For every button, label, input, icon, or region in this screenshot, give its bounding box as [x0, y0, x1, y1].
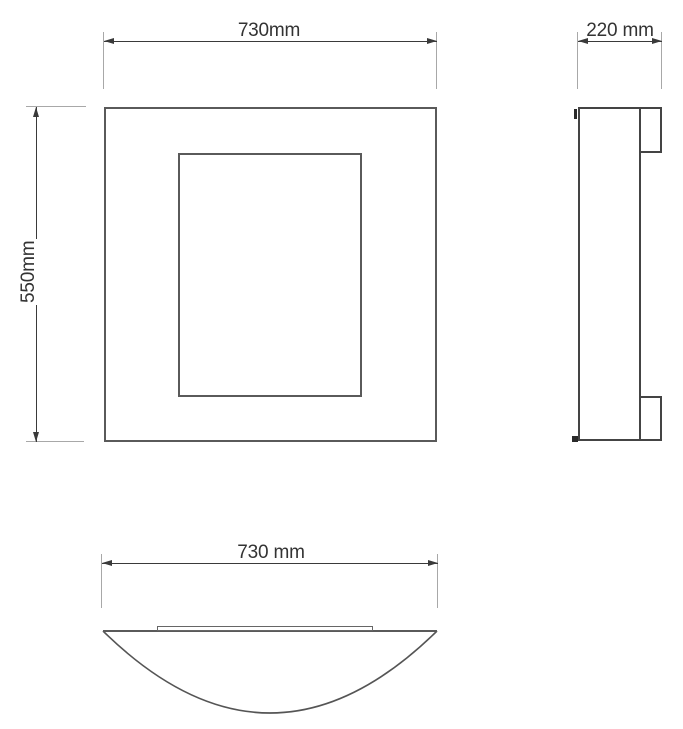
front-height-arrow-top — [33, 107, 39, 117]
front-view-inner-rect — [178, 153, 362, 397]
front-width-dim-label: 730mm — [229, 21, 309, 41]
side-view-top-bracket — [639, 107, 662, 153]
front-height-arrow-bottom — [33, 432, 39, 442]
front-width-dim-line — [104, 41, 437, 42]
bottom-width-dim-label: 730 mm — [231, 543, 311, 563]
side-view-bottom-weld-mark — [572, 436, 578, 442]
side-view-body — [578, 107, 641, 441]
side-depth-dim-line — [578, 41, 662, 42]
front-height-dim-label: 550mm — [19, 239, 39, 305]
technical-drawing: 730mm 550mm 220 mm — [0, 0, 683, 729]
bottom-view-mounting-strip — [157, 626, 373, 631]
bottom-view-profile-curve — [95, 622, 445, 727]
side-view-top-weld-mark — [574, 109, 577, 119]
side-view-bottom-bracket — [639, 396, 662, 441]
bottom-width-arrow-left — [102, 560, 112, 566]
front-width-arrow-right — [427, 38, 437, 44]
bottom-width-arrow-right — [428, 560, 438, 566]
front-width-arrow-left — [104, 38, 114, 44]
side-depth-dim-label: 220 mm — [580, 21, 660, 41]
bottom-width-dim-line — [102, 563, 438, 564]
